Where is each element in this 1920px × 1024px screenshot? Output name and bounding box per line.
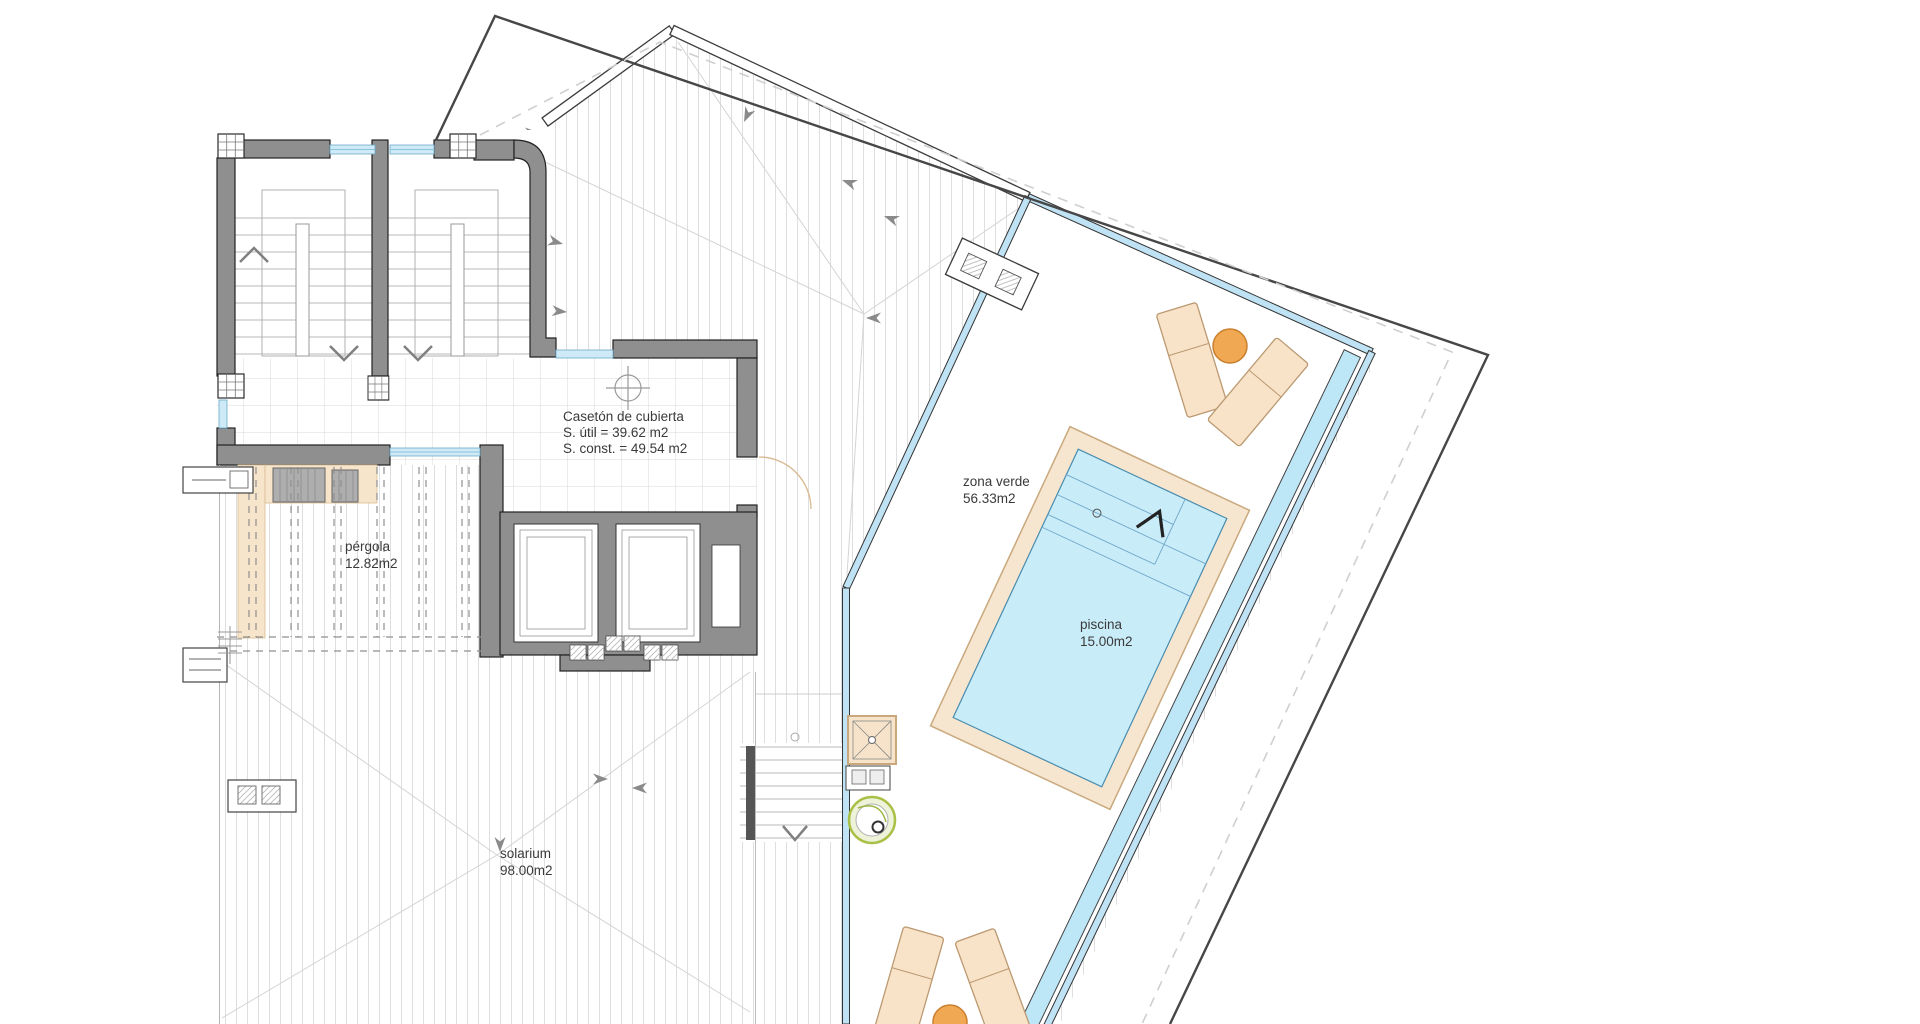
pergola-area-label: 12.82m2 xyxy=(345,556,398,571)
caseton-label-title: Casetón de cubierta xyxy=(563,409,684,424)
equipment-panel xyxy=(273,468,358,502)
vent-grille xyxy=(606,636,622,651)
vent-grille xyxy=(644,645,660,660)
skylight-right xyxy=(616,524,700,642)
barbecue-unit xyxy=(846,766,890,790)
roof-plan-drawing: Casetón de cubierta S. útil = 39.62 m2 S… xyxy=(0,0,1920,1024)
zona-verde-label: zona verde xyxy=(963,474,1030,489)
floor-plan-canvas: Casetón de cubierta S. útil = 39.62 m2 S… xyxy=(0,0,1920,1024)
caseton-label-const: S. const. = 49.54 m2 xyxy=(563,441,687,456)
planter xyxy=(849,797,895,843)
skylight-left xyxy=(514,524,598,642)
skylight-alcove xyxy=(712,545,740,627)
utility-box xyxy=(183,467,253,493)
pillar-marker xyxy=(450,134,476,158)
piscina-area-label: 15.00m2 xyxy=(1080,634,1133,649)
side-table xyxy=(1213,329,1247,363)
caseton-label-util: S. útil = 39.62 m2 xyxy=(563,425,668,440)
pillar-marker xyxy=(368,376,389,400)
piscina-label: piscina xyxy=(1080,617,1123,632)
skylight-block xyxy=(500,512,757,671)
vent-grille xyxy=(588,645,604,660)
solarium-label: solarium xyxy=(500,846,551,861)
pillar-marker xyxy=(218,374,244,398)
pergola-label: pérgola xyxy=(345,539,391,554)
drain-box xyxy=(228,780,296,812)
vent-grille xyxy=(662,645,678,660)
solarium-area-label: 98.00m2 xyxy=(500,863,553,878)
vent-grille xyxy=(570,645,586,660)
pillar-marker xyxy=(218,134,244,158)
vent-grille xyxy=(624,636,640,651)
zona-verde-area-label: 56.33m2 xyxy=(963,491,1016,506)
outdoor-shower xyxy=(848,716,896,764)
